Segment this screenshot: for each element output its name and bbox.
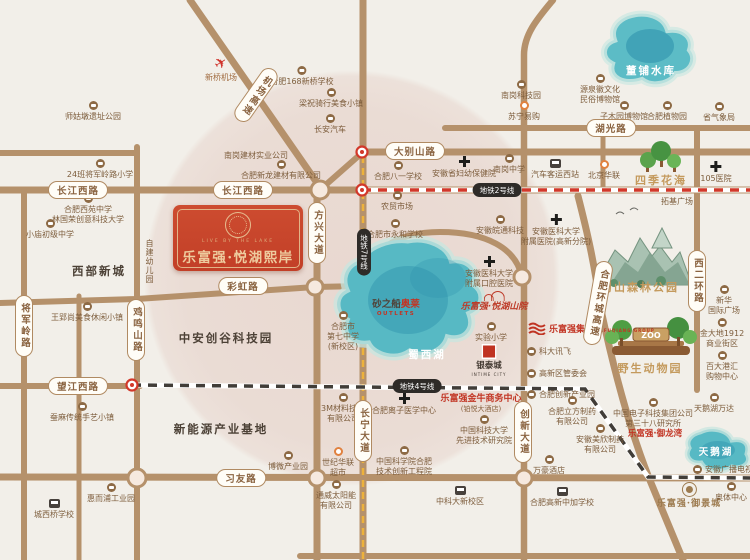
poi-jindadi-1912: 金大地1912 商业街区 bbox=[700, 318, 744, 349]
project-logo-medallion-icon bbox=[225, 212, 251, 238]
car-icon bbox=[663, 101, 672, 110]
poi-chengxiqiao-school: 城西桥学校 bbox=[34, 499, 74, 520]
car-icon bbox=[326, 114, 335, 123]
bus-icon bbox=[455, 486, 466, 495]
road-label-caihong: 彩虹路 bbox=[218, 277, 268, 295]
airplane-icon bbox=[210, 53, 232, 74]
car-icon bbox=[715, 102, 724, 111]
bus-icon bbox=[550, 159, 561, 168]
hospital-cross-icon bbox=[459, 156, 470, 167]
group-name-en: LEFUQIANG GROUP bbox=[597, 328, 655, 333]
seal-icon bbox=[681, 482, 696, 497]
shopping-icon bbox=[600, 160, 609, 169]
outlets-name-en: OUTLETS bbox=[372, 311, 420, 318]
poi-iflytek: 科大讯飞 bbox=[527, 346, 571, 357]
road-label-changjiangxi-west: 长江西路 bbox=[48, 181, 108, 199]
shopping-icon bbox=[334, 447, 343, 456]
car-icon bbox=[517, 80, 526, 89]
lake-label-shuxi: 蜀西湖 bbox=[408, 347, 446, 362]
poi-botanical-garden: 合肥植物园 bbox=[647, 101, 687, 122]
car-icon bbox=[391, 219, 400, 228]
road-label-jiangjunling: 将军岭路 bbox=[15, 295, 33, 357]
poi-no7-middle-school: 合肥市 第七中学 (新校区) bbox=[327, 311, 359, 352]
road-label-xiyou: 习友路 bbox=[216, 469, 266, 487]
car-icon bbox=[620, 101, 629, 110]
poi-shiji-hualian: 世纪华联 超市 bbox=[322, 447, 354, 478]
car-icon bbox=[727, 482, 736, 491]
car-icon bbox=[284, 451, 293, 460]
car-icon bbox=[332, 480, 341, 489]
road-label-chuangxin: 创新大道 bbox=[514, 401, 532, 463]
poi-nangang-middle: 南岗中学 bbox=[493, 154, 525, 175]
outlets-name-red: 奥莱 bbox=[401, 299, 420, 310]
poi-ustc-new-campus: 中科大新校区 bbox=[436, 486, 484, 507]
road-label-changning: 长宁大道 bbox=[354, 400, 372, 462]
brand-intime-city: 银泰城 INTIME CITY bbox=[472, 344, 507, 377]
car-icon bbox=[649, 398, 658, 407]
poi-yonghe-school: 合肥市永和学校 bbox=[367, 219, 423, 240]
car-icon bbox=[298, 66, 307, 75]
poi-craft-town: 蚕麻传统手艺小镇 bbox=[50, 402, 114, 423]
road-label-dabieshan: 大别山路 bbox=[385, 142, 445, 160]
car-icon bbox=[339, 393, 348, 402]
car-icon bbox=[89, 101, 98, 110]
bus-icon bbox=[557, 487, 568, 496]
car-icon bbox=[527, 390, 536, 399]
poi-liangzhu-town: 梁祝骑行美食小镇 bbox=[299, 88, 363, 109]
poi-kindergarten: 自建幼儿园 bbox=[144, 239, 155, 284]
poi-baida-mall: 百大港汇 购物中心 bbox=[706, 351, 738, 382]
poi-gaoxin-committee: 高新区管委会 bbox=[527, 368, 587, 379]
brand-yulongwan: 乐富强·御龙湾 bbox=[628, 429, 682, 440]
location-map: ZOO LIVE BY THE LAKE 乐富强·悦湖熙岸 大别山路 长江西路 … bbox=[0, 0, 750, 560]
hospital-cross-icon bbox=[399, 393, 410, 404]
zone-xibuxincheng: 西部新城 bbox=[72, 263, 126, 279]
poi-weather-bureau: 省气象局 bbox=[703, 102, 735, 123]
car-icon bbox=[718, 351, 727, 360]
road-label-jimingshan: 鸡鸣山路 bbox=[127, 299, 145, 361]
poi-suning: 苏宁易购 bbox=[508, 101, 540, 122]
road-xiyou bbox=[0, 477, 750, 478]
road-label-wangjiangxi: 望江西路 bbox=[48, 377, 108, 395]
poi-bus-station-west: 汽车客运西站 bbox=[531, 159, 579, 180]
poi-sports-center: 奥体中心 bbox=[715, 482, 747, 503]
brand-jinniu-center: 乐富强金牛商务中心 (铂悦大酒店) bbox=[440, 394, 521, 414]
zone-zhongan: 中安创谷科技园 bbox=[179, 330, 274, 346]
hospital-cross-icon bbox=[551, 214, 562, 225]
group-flag-icon bbox=[528, 322, 546, 335]
bus-icon bbox=[49, 499, 60, 508]
poi-fuyou-hospital: 安徽省妇幼保健院 bbox=[432, 156, 496, 179]
road-label-changjiangxi-east: 长江西路 bbox=[213, 181, 273, 199]
poi-meixin-pharma: 安徽美欣制药 有限公司 bbox=[576, 424, 624, 455]
car-icon bbox=[394, 161, 403, 170]
poi-wanda: 天鹅湖万达 bbox=[694, 393, 734, 414]
poi-beijing-hualian: 北京华联 bbox=[588, 160, 620, 181]
poi-bowei-park: 博微产业园 bbox=[268, 451, 308, 472]
car-icon bbox=[78, 402, 87, 411]
poi-sino-canada-school: 合肥高新中加学校 bbox=[530, 487, 594, 508]
car-icon bbox=[400, 446, 409, 455]
pavilion-icon bbox=[483, 291, 505, 301]
poi-ion-medical-center: 合肥离子医学中心 bbox=[372, 393, 436, 416]
poi-yikeda-gaoxin-hospital: 安徽医科大学 附属医院(高新分院) bbox=[521, 214, 591, 247]
road-label-huguang: 湖光路 bbox=[586, 119, 636, 137]
project-badge: LIVE BY THE LAKE 乐富强·悦湖熙岸 bbox=[173, 205, 303, 271]
zone-sijihuahai: 四季花海 bbox=[635, 172, 687, 188]
car-icon bbox=[505, 154, 514, 163]
brand-yuehu-shanyuan: 乐富强·悦湖山院 bbox=[461, 291, 527, 313]
poi-tuoji-plaza: 拓基广场 bbox=[661, 197, 693, 207]
poi-xinqiao-airport: 新桥机场 bbox=[205, 56, 237, 83]
car-icon bbox=[568, 396, 577, 405]
road-label-xierhuan: 西二环路 bbox=[688, 250, 706, 312]
poi-anhui-tv: 安徽广播电视台 bbox=[693, 464, 750, 475]
poi-wantong-tech: 安徽皖通科技 bbox=[476, 215, 524, 236]
zone-shushan-park: 蜀山森林公园 bbox=[601, 279, 679, 295]
metro-label-line7: 地铁7号线 bbox=[357, 229, 371, 276]
poi-changan-auto: 长安汽车 bbox=[314, 114, 346, 135]
car-icon bbox=[107, 483, 116, 492]
car-icon bbox=[327, 88, 336, 97]
poi-bayi-school: 合肥八一学校 bbox=[374, 161, 422, 182]
car-icon bbox=[693, 465, 702, 474]
car-icon bbox=[339, 311, 348, 320]
lake-label-tiane: 天鹅湖 bbox=[699, 444, 734, 458]
poi-tongwei-solar: 通威太阳能 有限公司 bbox=[316, 480, 356, 511]
metro-label-line4: 地铁4号线 bbox=[393, 379, 442, 393]
poi-marriott: 万豪酒店 bbox=[533, 455, 565, 476]
car-icon bbox=[83, 302, 92, 311]
poi-whirlpool: 惠而浦工业园 bbox=[87, 483, 135, 504]
outlets-mark: 砂之船奥莱 OUTLETS bbox=[372, 292, 420, 318]
car-icon bbox=[480, 415, 489, 424]
poi-105-hospital: 105医院 bbox=[700, 161, 731, 184]
car-icon bbox=[527, 347, 536, 356]
car-icon bbox=[545, 455, 554, 464]
intime-logo-icon bbox=[482, 344, 497, 359]
poi-experimental-primary: 实验小学 bbox=[475, 322, 507, 343]
car-icon bbox=[596, 424, 605, 433]
car-icon bbox=[717, 318, 726, 327]
lake-label-dongpu: 董铺水库 bbox=[626, 63, 676, 78]
poi-lifang-pharma: 合肥立方制药 有限公司 bbox=[548, 396, 596, 427]
poi-hefei168: 合肥168新桥学校 bbox=[270, 66, 333, 87]
car-icon bbox=[487, 322, 496, 331]
poi-shigudun: 师姑墩遗址公园 bbox=[65, 101, 121, 122]
car-icon bbox=[393, 191, 402, 200]
metro-label-line2: 地铁2号线 bbox=[473, 183, 522, 197]
hospital-cross-icon bbox=[711, 161, 722, 172]
poi-cas-engineering: 中国科学院合肥 技术创新工程院 bbox=[376, 446, 432, 477]
poi-ustc-institute: 中国科技大学 先进技术研究院 bbox=[456, 415, 512, 446]
car-icon bbox=[527, 369, 536, 378]
poi-jiangjun-primary: 24班将军岭路小学 bbox=[67, 159, 133, 180]
poi-farmers-market: 农贸市场 bbox=[381, 191, 413, 212]
outlets-name-cn: 砂之船 bbox=[372, 299, 401, 310]
car-icon bbox=[720, 285, 729, 294]
car-icon bbox=[710, 393, 719, 402]
road-label-fangxing: 方兴大道 bbox=[308, 202, 326, 264]
zone-zoo: 野生动物园 bbox=[618, 360, 683, 376]
flower-sea-trees-icon bbox=[640, 141, 681, 172]
car-icon bbox=[277, 160, 286, 169]
car-icon bbox=[596, 74, 605, 83]
shopping-icon bbox=[520, 101, 529, 110]
poi-nangang-tech: 南岗科技园 bbox=[501, 80, 541, 101]
poi-cetc-38: 中国电子科技集团公司 第三十八研究所 bbox=[613, 398, 693, 429]
hospital-cross-icon bbox=[484, 256, 495, 267]
car-icon bbox=[496, 215, 505, 224]
poi-stomatology-hospital: 安徽医科大学 附属口腔医院 bbox=[465, 256, 513, 289]
brand-yujingcheng: 乐富强·御景城 bbox=[657, 482, 721, 510]
poi-xinhua-plaza: 新华 国际广场 bbox=[708, 285, 740, 316]
car-icon bbox=[96, 159, 105, 168]
poi-xinlong: 合肥新龙建材有限公司 bbox=[241, 160, 321, 181]
poi-wangying-food-town: 王郢尚美食休闲小镇 bbox=[51, 302, 123, 323]
zone-xinnengyuan: 新能源产业基地 bbox=[174, 421, 269, 437]
